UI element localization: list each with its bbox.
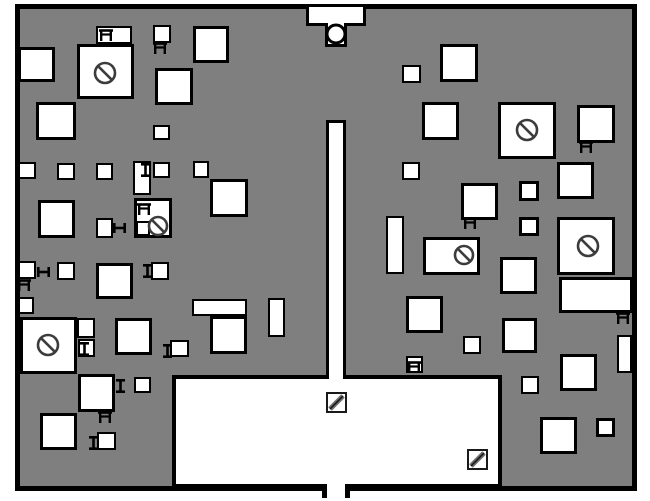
obstacle-box: [500, 257, 537, 294]
obstacle-box: [268, 298, 285, 337]
obstacle-box: [57, 163, 75, 180]
obstacle-box: [557, 217, 615, 275]
obstacle-box: [559, 277, 633, 313]
obstacle-box: [153, 25, 171, 43]
obstacle-box: [36, 102, 76, 140]
obstacle-box: [96, 218, 113, 238]
door-gap: [327, 484, 345, 497]
obstacle-box: [115, 318, 152, 355]
obstacle-box: [96, 26, 132, 44]
obstacle-box: [18, 261, 36, 279]
obstacle-box: [133, 161, 151, 195]
obstacle-box: [77, 318, 95, 338]
obstacle-box: [519, 217, 539, 236]
obstacle-box: [422, 102, 459, 140]
obstacle-box: [77, 44, 134, 99]
obstacle-box: [78, 339, 95, 357]
door-tick: [345, 484, 350, 498]
obstacle-box: [97, 432, 116, 450]
obstacle-box: [617, 335, 632, 373]
obstacle-box: [423, 237, 480, 275]
obstacle-box: [155, 68, 193, 105]
obstacle-box: [96, 163, 113, 180]
obstacle-box: [193, 26, 229, 63]
obstacle-box: [406, 356, 423, 373]
obstacle-box: [402, 65, 421, 83]
obstacle-box: [57, 262, 75, 280]
obstacle-box: [96, 263, 133, 299]
obstacle-box: [502, 318, 537, 353]
obstacle-box: [193, 161, 209, 178]
obstacle-box: [461, 183, 498, 220]
obstacle-box: [78, 374, 115, 412]
obstacle-box: [540, 417, 577, 454]
obstacle-box: [406, 296, 443, 333]
obstacle-box: [20, 317, 77, 374]
obstacle-box: [192, 299, 247, 316]
obstacle-box: [498, 102, 556, 159]
obstacle-box: [153, 162, 170, 178]
obstacle-box: [170, 340, 189, 357]
room: [172, 375, 502, 488]
corridor: [326, 120, 346, 379]
obstacle-box: [463, 336, 481, 354]
obstacle-box: [18, 47, 55, 82]
entrance-t-stem: [325, 23, 347, 47]
obstacle-box: [151, 262, 169, 280]
obstacle-box: [557, 162, 594, 199]
obstacle-box: [519, 181, 539, 201]
obstacle-box: [386, 216, 404, 274]
obstacle-box: [210, 316, 247, 354]
door-tick: [322, 484, 327, 498]
obstacle-box: [440, 44, 478, 82]
obstacle-box: [18, 162, 36, 179]
obstacle-box: [560, 354, 597, 391]
obstacle-box: [18, 297, 34, 314]
obstacle-box: [40, 413, 77, 450]
obstacle-box: [521, 376, 539, 394]
obstacle-box: [596, 418, 615, 437]
map-canvas: [0, 0, 650, 501]
obstacle-box: [134, 377, 151, 393]
obstacle-box: [577, 105, 615, 143]
obstacle-box: [210, 179, 248, 217]
obstacle-box: [153, 125, 170, 140]
obstacle-box: [402, 162, 420, 180]
obstacle-box: [136, 221, 150, 236]
obstacle-box: [38, 200, 75, 238]
